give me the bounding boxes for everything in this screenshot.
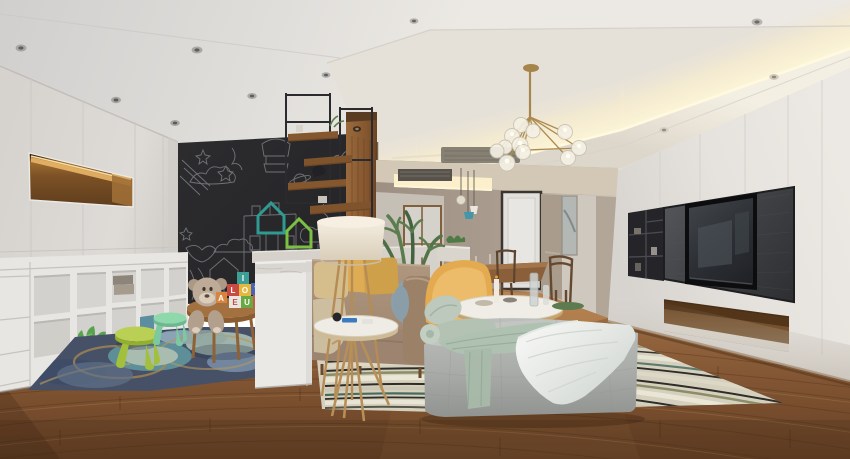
svg-text:L: L [231,286,236,295]
svg-text:I: I [242,274,244,283]
svg-text:E: E [232,298,238,307]
svg-text:O: O [242,286,248,295]
svg-text:U: U [244,298,250,307]
svg-text:A: A [218,294,224,303]
